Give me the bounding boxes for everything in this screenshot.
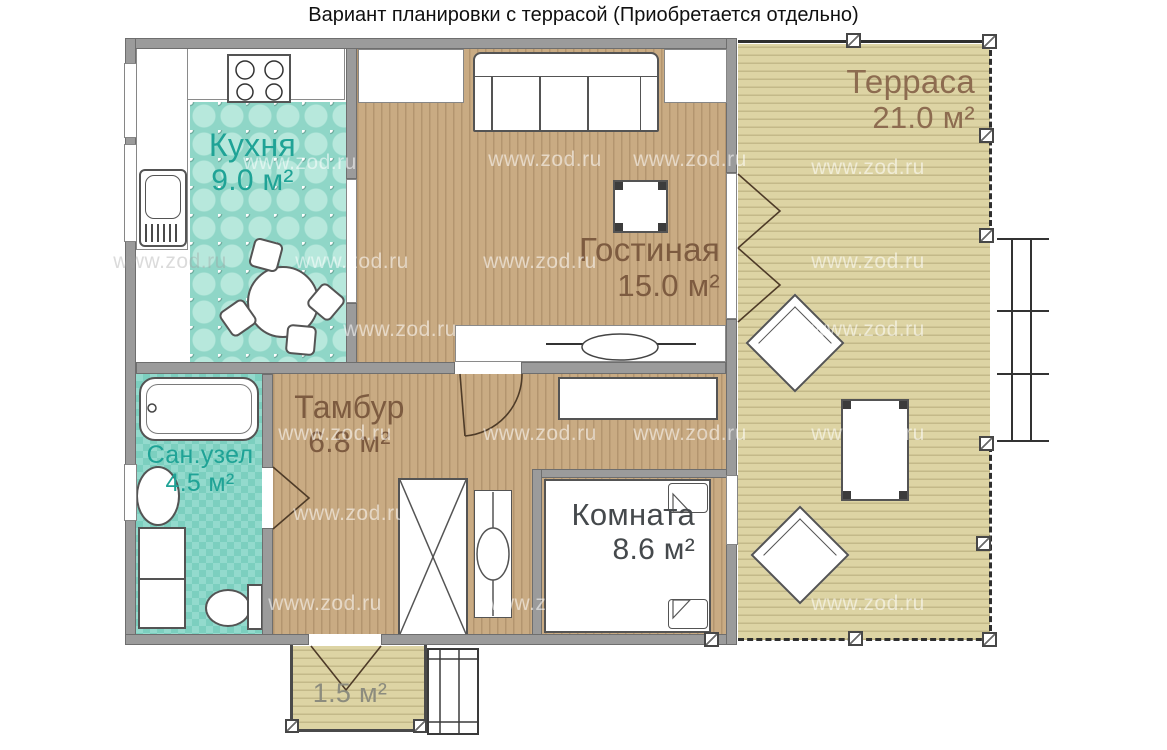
tv [546, 334, 696, 360]
terrace-area: 21.0 м² [800, 101, 975, 136]
watermark: www.zod.ru [483, 592, 597, 616]
terrace-stairs [997, 238, 1049, 442]
watermark: www.zod.ru [483, 250, 597, 274]
door-swing-terrace [738, 174, 780, 322]
watermark: www.zod.ru [811, 318, 925, 342]
watermark: www.zod.ru [811, 422, 925, 446]
floor-plan: Вариант планировки с террасой (Приобрета… [0, 0, 1167, 750]
stove-burners [236, 61, 283, 100]
watermark: www.zod.ru [811, 592, 925, 616]
tub-faucet [148, 404, 156, 412]
watermark: www.zod.ru [268, 592, 382, 616]
watermark: www.zod.ru [633, 422, 747, 446]
porch-step-lines [428, 649, 478, 734]
living-area: 15.0 м² [540, 269, 720, 304]
watermark: www.zod.ru [633, 148, 747, 172]
watermark: www.zod.ru [278, 422, 392, 446]
closet-cross [400, 480, 466, 634]
room-label-porch: 1.5 м² [300, 678, 400, 708]
vestibule-name: Тамбур [272, 390, 427, 426]
watermark: www.zod.ru [113, 250, 227, 274]
room-label-bedroom: Комната 8.6 м² [545, 498, 695, 566]
bathroom-name: Сан.узел [134, 441, 266, 469]
room-label-bathroom: Сан.узел 4.5 м² [134, 441, 266, 497]
watermark: www.zod.ru [811, 156, 925, 180]
plan-title: Вариант планировки с террасой (Приобрета… [0, 4, 1167, 27]
watermark: www.zod.ru [488, 148, 602, 172]
bedroom-name: Комната [545, 498, 695, 533]
watermark: www.zod.ru [343, 318, 457, 342]
bedroom-area: 8.6 м² [545, 533, 695, 567]
bathroom-area: 4.5 м² [134, 469, 266, 497]
watermark: www.zod.ru [243, 151, 357, 175]
watermark: www.zod.ru [295, 250, 409, 274]
terrace-name: Терраса [800, 64, 975, 101]
plan-annotations [0, 0, 1167, 750]
watermark: www.zod.ru [293, 502, 407, 526]
watermark: www.zod.ru [811, 250, 925, 274]
watermark: www.zod.ru [483, 422, 597, 446]
room-label-terrace: Терраса 21.0 м² [800, 64, 975, 136]
